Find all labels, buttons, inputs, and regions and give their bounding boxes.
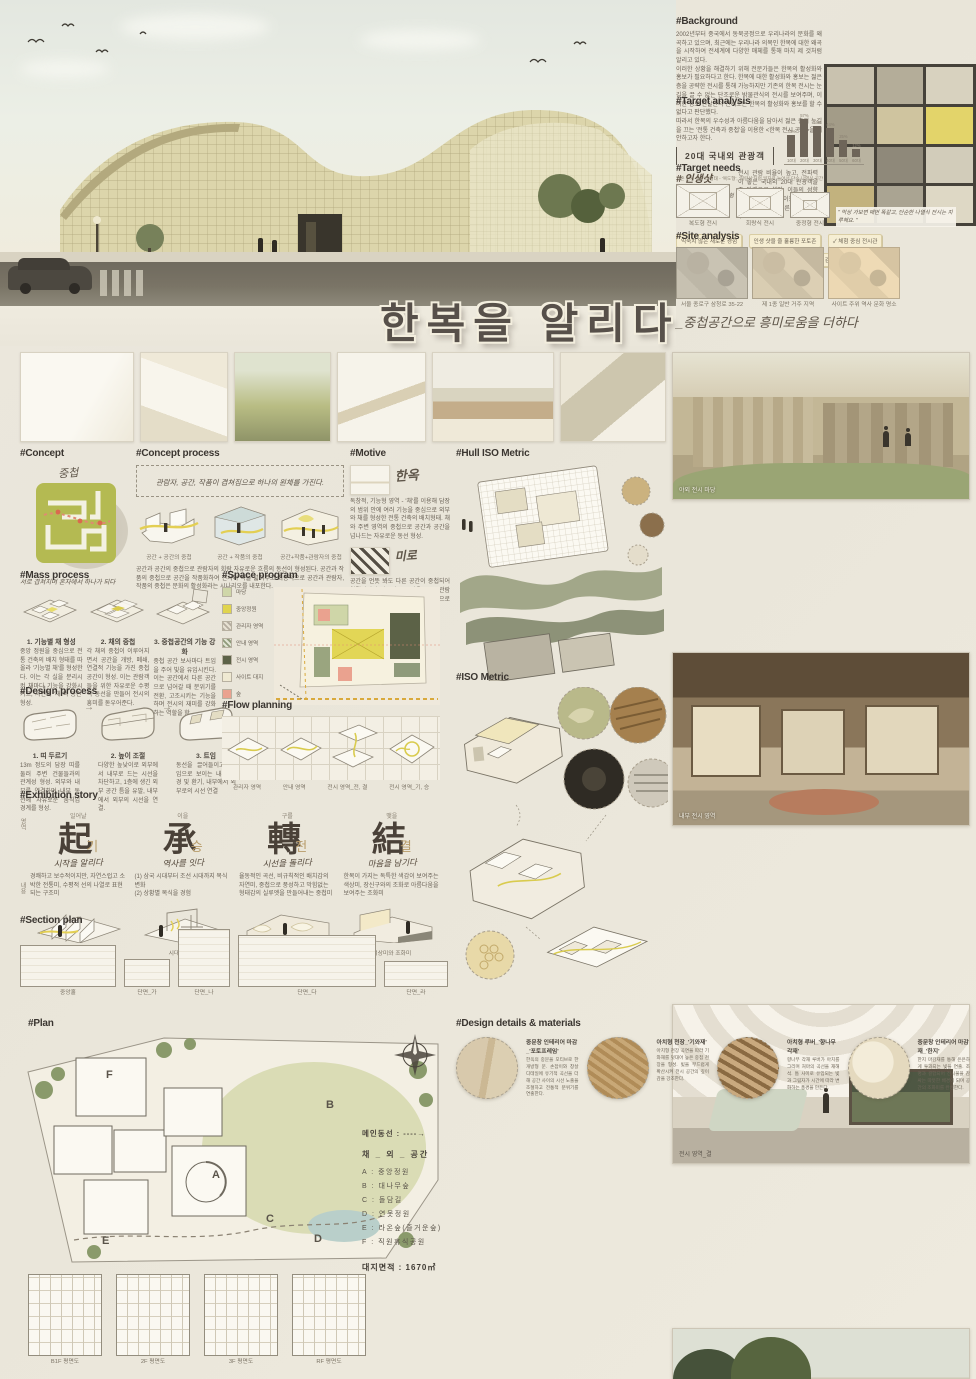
overlap-diagram-work [207,503,271,547]
flow-planning-section: #Flow planning 관리자 영역 안내 영역 전시 영역_전, 결 전… [222,700,440,791]
detail-text: 아치형 천장_'기와재' 아치형 천장 곡면을 따라 기와재를 덧대어 높은 중… [657,1037,710,1099]
floor-plan-thumbs: B1F 평면도 2F 평면도 3F 평면도 RF 평면도 [28,1274,366,1365]
concept-sketch-strip [20,352,666,442]
legend-entry: E : 라온숲(즐거운숲) [362,1222,462,1236]
overlap-diagram-visitor [278,503,342,547]
bar-group: 12%60대 [851,143,862,164]
render-round-bench [769,789,879,815]
row-label: 내용 [18,882,27,894]
birds [28,24,586,62]
design-step-diagram [98,702,158,742]
cp-caption: 공간+작품+관람자의 중첩 [278,552,344,561]
design-process-heading: #Design process [20,686,216,697]
site-analysis: #Site analysis 서울 종로구 삼청로 35-22 제 1종 일반 … [676,231,968,308]
detail-title: 중문창 인테리어 마감_'포토프레임' [526,1037,579,1055]
plan-legend-items: A : 중앙정원 B : 대나무숲 C : 돌담길 D : 연못정원 E : 라… [362,1166,462,1250]
section-caption: 단면_가 [124,987,170,996]
bar-value-label: 12% [852,143,860,148]
plan-letter: C [266,1213,274,1225]
detail-body: 아치형 천장 곡면을 따라 기와재를 덧대어 높은 중첩 천장을 형성. 빛을 … [657,1048,710,1082]
concept-keyword: 중첩 [58,461,131,482]
legend-entry: A : 중앙정원 [362,1166,462,1180]
row-label: 영역 [18,818,27,830]
mass-step-title: 1. 기능별 채 형성 [20,636,83,646]
thumb-caption: RF 평면도 [292,1356,366,1365]
hull-iso-section: #Hull ISO Metric [456,448,668,686]
legend-entry: D : 연못정원 [362,1208,462,1222]
chapter-hand: 마음을 남기다 [343,855,440,870]
chapters-row: 일어날 起기 시작을 알리다 경쾌하고 보수적이지만, 자연스럽고 소박한 전통… [30,805,440,899]
model-photo-tile [234,352,331,442]
chapter: 이을 承승 역사를 잇다 (1) 삼국 시대부터 조선 시대까지 복식 변화 (… [135,805,232,899]
motive-word: 한옥 [394,464,420,496]
hanok-sketch [350,465,390,495]
chapter-kor: 결 [400,839,412,854]
overlap-diagram-space [136,503,200,547]
sketch-tile [560,352,666,442]
chapter-hand: 시작을 알리다 [30,855,127,870]
render-caption: 야외 전시 마당 [679,485,715,494]
chapter-kor: 승 [191,839,203,854]
iso-metric-section: #ISO Metric [456,672,668,1010]
bar [839,140,847,157]
chapter: 구를 轉전 시선을 돌리다 율동적인 곡선, 비규칙적인 배치감의 자연미, 중… [239,805,336,899]
thumb-caption: 2F 평면도 [116,1356,190,1365]
iso-heading: #ISO Metric [456,672,668,683]
car-wheel [20,283,31,294]
bar-value-label: 46% [813,120,821,125]
figure [883,431,889,447]
legend-label: 안내 영역 [236,639,258,647]
render-courtyard: 야외 전시 마당 [672,352,970,500]
exhibit-type-diagram [790,192,830,218]
legend-label: 전시 영역 [236,656,258,664]
legend-swatch [222,604,232,614]
site-area: 대지면적 : 1670㎡ [362,1262,462,1273]
concept-quote-box: 관람자, 공간, 작품이 겹쳐짐으로 하나의 원체를 가진다. [136,465,344,497]
design-step-title: 2. 높이 조절 [98,750,158,760]
legend-entry: C : 돌담길 [362,1194,462,1208]
bar-group: 57%20대 [799,113,810,164]
car-silhouette [8,266,92,290]
section-plan-section: #Section plan 중앙홀 단면_가 단면_나 단면_다 단면_라 [20,915,440,996]
mass-step-title: 3. 중첩공간의 기능 강화 [153,636,216,656]
crosswalk-stripe [100,270,107,296]
details-heading: #Design details & materials [456,1018,970,1029]
chapter-body: 한복이 가지는 독특한 색감이 보여주는 색상미, 장신구와의 조화로 아름다움… [344,873,441,899]
plan-section-heading-wrap: #Plan [28,1018,54,1029]
exhibit-type-diagram [736,188,784,218]
bar-group: 33%10대 [786,129,797,164]
section-drawing [124,959,170,987]
hero-building-illustration [0,0,676,268]
detail-photo-louver [717,1037,779,1099]
mass-process-heading: #Mass process [20,570,216,581]
figure [905,433,911,446]
bar [852,149,860,157]
mass-step-diagram [20,586,80,628]
detail-title: 중문창 인테리어 마감재_'한지' [918,1037,971,1055]
render-wall [693,397,813,467]
legend-swatch [222,621,232,631]
legend-entry: F : 직원휴식공원 [362,1236,462,1250]
plan-legend-title: 채 _ 외 _ 공간 [362,1149,462,1160]
plan-letter: A [212,1169,220,1181]
chapter-hand: 역사를 잇다 [134,855,231,870]
plan-flow: 메인동선 : ----→ [362,1128,462,1139]
target-quote: " 막상 가보면 매번 똑같고, 단순한 나열식 전시는 지루해요. " [836,207,956,227]
section-drawing [238,935,376,987]
design-step-diagram [20,702,80,742]
presentation-board: 한복을 알리다 _중첩공간으로 흥미로움을 더하다 #Background 20… [0,0,976,1379]
flow-grid [222,716,440,780]
thumb-caption: B1F 평면도 [28,1356,102,1365]
detail-photo-hanji [848,1037,910,1099]
concept-heading: #Concept [20,448,130,459]
cp-caption: 공간 + 공간의 중첩 [136,552,202,561]
arrow-icon: → [162,702,172,713]
space-program-map [274,587,440,705]
bar-group: 46%30대 [812,120,823,164]
bar [826,128,834,157]
target-needs-note: 기존 전시 공간의 형태 - '복도형', '회랑식'처럼 일자로 늘어선 단순… [676,176,968,182]
render-sky [673,353,970,397]
site-map-image [828,247,900,299]
cp-caption: 공간 + 작품의 중첩 [207,552,273,561]
legend-swatch [222,672,232,682]
section-drawing [178,929,230,987]
compass-rose-icon [392,1032,438,1078]
legend-label: 중앙정원 [236,605,257,613]
detail-text: 중문창 인테리어 마감재_'한지' 한지 마감재를 통해 은은하게 투과되는 빛… [918,1037,971,1099]
bar-value-label: 44% [826,122,834,127]
site-analysis-heading: #Site analysis [676,231,968,242]
plan-letter: D [314,1233,322,1245]
hero-sky [0,0,676,268]
section-caption: 단면_라 [384,987,448,996]
crosswalk-stripe [136,270,143,296]
concept-maze-icon [34,481,118,565]
render-screen [865,705,939,775]
legend-label: 관리자 영역 [236,622,263,630]
design-step-title: 1. 띠 두르기 [20,750,80,760]
flow-plan [277,728,325,768]
concept-process-heading: #Concept process [136,448,344,459]
legend-swatch [222,655,232,665]
detail-photo-doorpull [456,1037,518,1099]
site-caption: 사이트 주위 역사 문화 명소 [828,299,900,308]
plan-letter: F [106,1069,113,1081]
legend-swatch [222,638,232,648]
site-caption: 제 1종 일반 거주 지역 [752,299,824,308]
render-screen [691,705,761,777]
section-caption: 단면_다 [238,987,376,996]
arrow-icon: → [84,702,94,713]
bar [787,135,795,157]
mass-step-diagram [153,586,213,628]
plan-letter: B [326,1099,334,1111]
detail-title: 아치형 루버_'향나무 각재' [787,1037,840,1055]
sidewalk [0,252,676,262]
target-analysis-heading: #Target analysis [676,96,968,107]
chapter-body: 율동적인 곡선, 비규칙적인 배치감의 자연미, 중첩으로 풍성하고 막힘없는 … [239,873,336,899]
flow-planning-heading: #Flow planning [222,700,440,711]
floor-plan-thumb [292,1274,366,1356]
flow-plan [386,725,438,771]
chapter: 맺을 結결 마음을 남기다 한복이 가지는 독특한 색감이 보여주는 색상미, … [344,805,441,899]
crosswalk-stripe [124,270,131,296]
exhibit-type-diagram [676,184,730,218]
render-outdoor-walls: 외부 중정 [672,1328,970,1379]
chapter-hand: 시선을 돌리다 [239,855,336,870]
legend-label: 마당 [236,588,246,596]
flow-plan [329,721,381,775]
details-section: #Design details & materials 중문창 인테리어 마감_… [456,1018,970,1099]
sketch-tile [20,352,134,442]
section-caption: 단면_나 [178,987,230,996]
section-plan-heading: #Section plan [20,915,440,926]
render-caption: 전시 영역_결 [679,1149,712,1158]
chapter-kor: 전 [295,839,307,854]
render-interior-exhibit: 내부 전시 영역 [672,652,970,826]
section-drawing [384,961,448,987]
section-drawing [20,945,116,987]
plan-letter: E [102,1235,109,1247]
render-beams [673,661,970,695]
render-lawn [673,463,970,499]
chapter-body: 경쾌하고 보수적이지만, 자연스럽고 소박한 전통미, 수평적 선의 나열로 표… [30,873,127,899]
bar-value-label: 33% [787,129,795,134]
diagram-caption: 중정형 전시 [790,218,830,227]
legend-label: 숲 [236,690,241,698]
bar-group: 25%50대 [838,134,849,164]
site-caption: 서울 종로구 삼청로 35-22 [676,299,748,308]
render-tree [731,1337,811,1379]
space-program-section: #Space program 마당 중앙정원 관리자 영역 안내 영역 전시 영… [222,570,440,706]
plan-heading: #Plan [28,1018,54,1029]
floor-plan-thumb [28,1274,102,1356]
chapter-kor: 기 [86,839,98,854]
legend-swatch [222,689,232,699]
bar-group: 44%40대 [825,122,836,164]
detail-title: 아치형 천장_'기와재' [657,1037,710,1046]
legend-label: 사이트 대지 [236,673,263,681]
section-caption: 중앙홀 [20,987,116,996]
detail-text: 중문창 인테리어 마감_'포토프레임' 한옥의 중문을 모티브로 한 개방형 문… [526,1037,579,1099]
detail-text: 아치형 루버_'향나무 각재' 향나무 각재 루버가 아치를 그리며 처마의 곡… [787,1037,840,1099]
concept-quote: 관람자, 공간, 작품이 겹쳐짐으로 하나의 원체를 가진다. [156,478,324,487]
diagram-caption: 복도형 전시 [676,218,730,227]
hull-iso-drawing [456,463,668,681]
space-program-heading: #Space program [222,570,440,581]
legend-entry: B : 대나무숲 [362,1180,462,1194]
legend-swatch [222,587,232,597]
concept-section: #Concept 중첩 서로 겹쳐지며 혼자에서 하나가 되다 [20,448,130,586]
render-caption: 내부 전시 영역 [679,811,715,820]
hull-iso-heading: #Hull ISO Metric [456,448,668,459]
mass-step-diagram [87,586,147,628]
bar-value-label: 57% [800,113,808,118]
hull-figures [462,519,473,532]
detail-body: 향나무 각재 루버가 아치를 그리며 처마의 곡선을 재해석. 틈 사이로 유입… [787,1057,840,1091]
detail-photo-roof [587,1037,649,1099]
background-heading: #Background [676,16,968,27]
chapter: 일어날 起기 시작을 알리다 경쾌하고 보수적이지만, 자연스럽고 소박한 전통… [30,805,127,899]
bar [800,119,808,157]
crosswalk-stripe [112,270,119,296]
target-bar-chart: 33%10대57%20대46%30대44%40대25%50대12%60대 [784,113,864,165]
chapter-body: (1) 삼국 시대부터 조선 시대까지 복식 변화 (2) 상황별 복식을 경험 [135,873,232,899]
exhibition-story-heading: #Exhibition story [20,790,440,801]
sketch-tile [337,352,425,442]
target-needs-heading: #Target needs [676,163,968,174]
bar-value-label: 25% [839,134,847,139]
motive-body: 독창적, 기능형 영역 - '채'를 이용해 담장의 범위 안에 여러 기능을 … [350,498,450,541]
thumb-caption: 3F 평면도 [204,1356,278,1365]
site-map-image [676,247,748,299]
iso-metric-drawing [456,687,668,1007]
detail-body: 한지 마감재를 통해 은은하게 투과되는 빛을 연출. 조명과 결합되어 전시물… [918,1057,971,1091]
site-map-image [752,247,824,299]
mass-step-title: 2. 채의 중첩 [87,636,150,646]
floor-plan-thumb [116,1274,190,1356]
flow-plan [224,728,272,768]
floor-plan-thumb [204,1274,278,1356]
car-wheel [69,283,80,294]
render-screen [781,709,845,775]
sketch-tile [140,352,228,442]
detail-body: 한옥의 중문을 모티브로 한 개방형 문. 손잡이와 창살 디테일에 유기적 곡… [526,1057,579,1098]
motive-heading: #Motive [350,448,450,459]
diagram-caption: 회랑식 전시 [736,218,784,227]
page-subtitle: _중첩공간으로 흥미로움을 더하다 [676,312,966,331]
model-photo-tile [432,352,555,442]
plan-legend: 메인동선 : ----→ 채 _ 외 _ 공간 A : 중앙정원 B : 대나무… [362,1128,462,1273]
page-title: 한복을 알리다 [380,290,680,351]
bar [813,126,821,157]
space-program-legend: 마당 중앙정원 관리자 영역 안내 영역 전시 영역 사이트 대지 숲 [222,587,274,706]
concept-process-diagrams: 공간 + 공간의 중첩 공간 + 작품의 중첩 공간+작품+관람 [136,503,344,561]
